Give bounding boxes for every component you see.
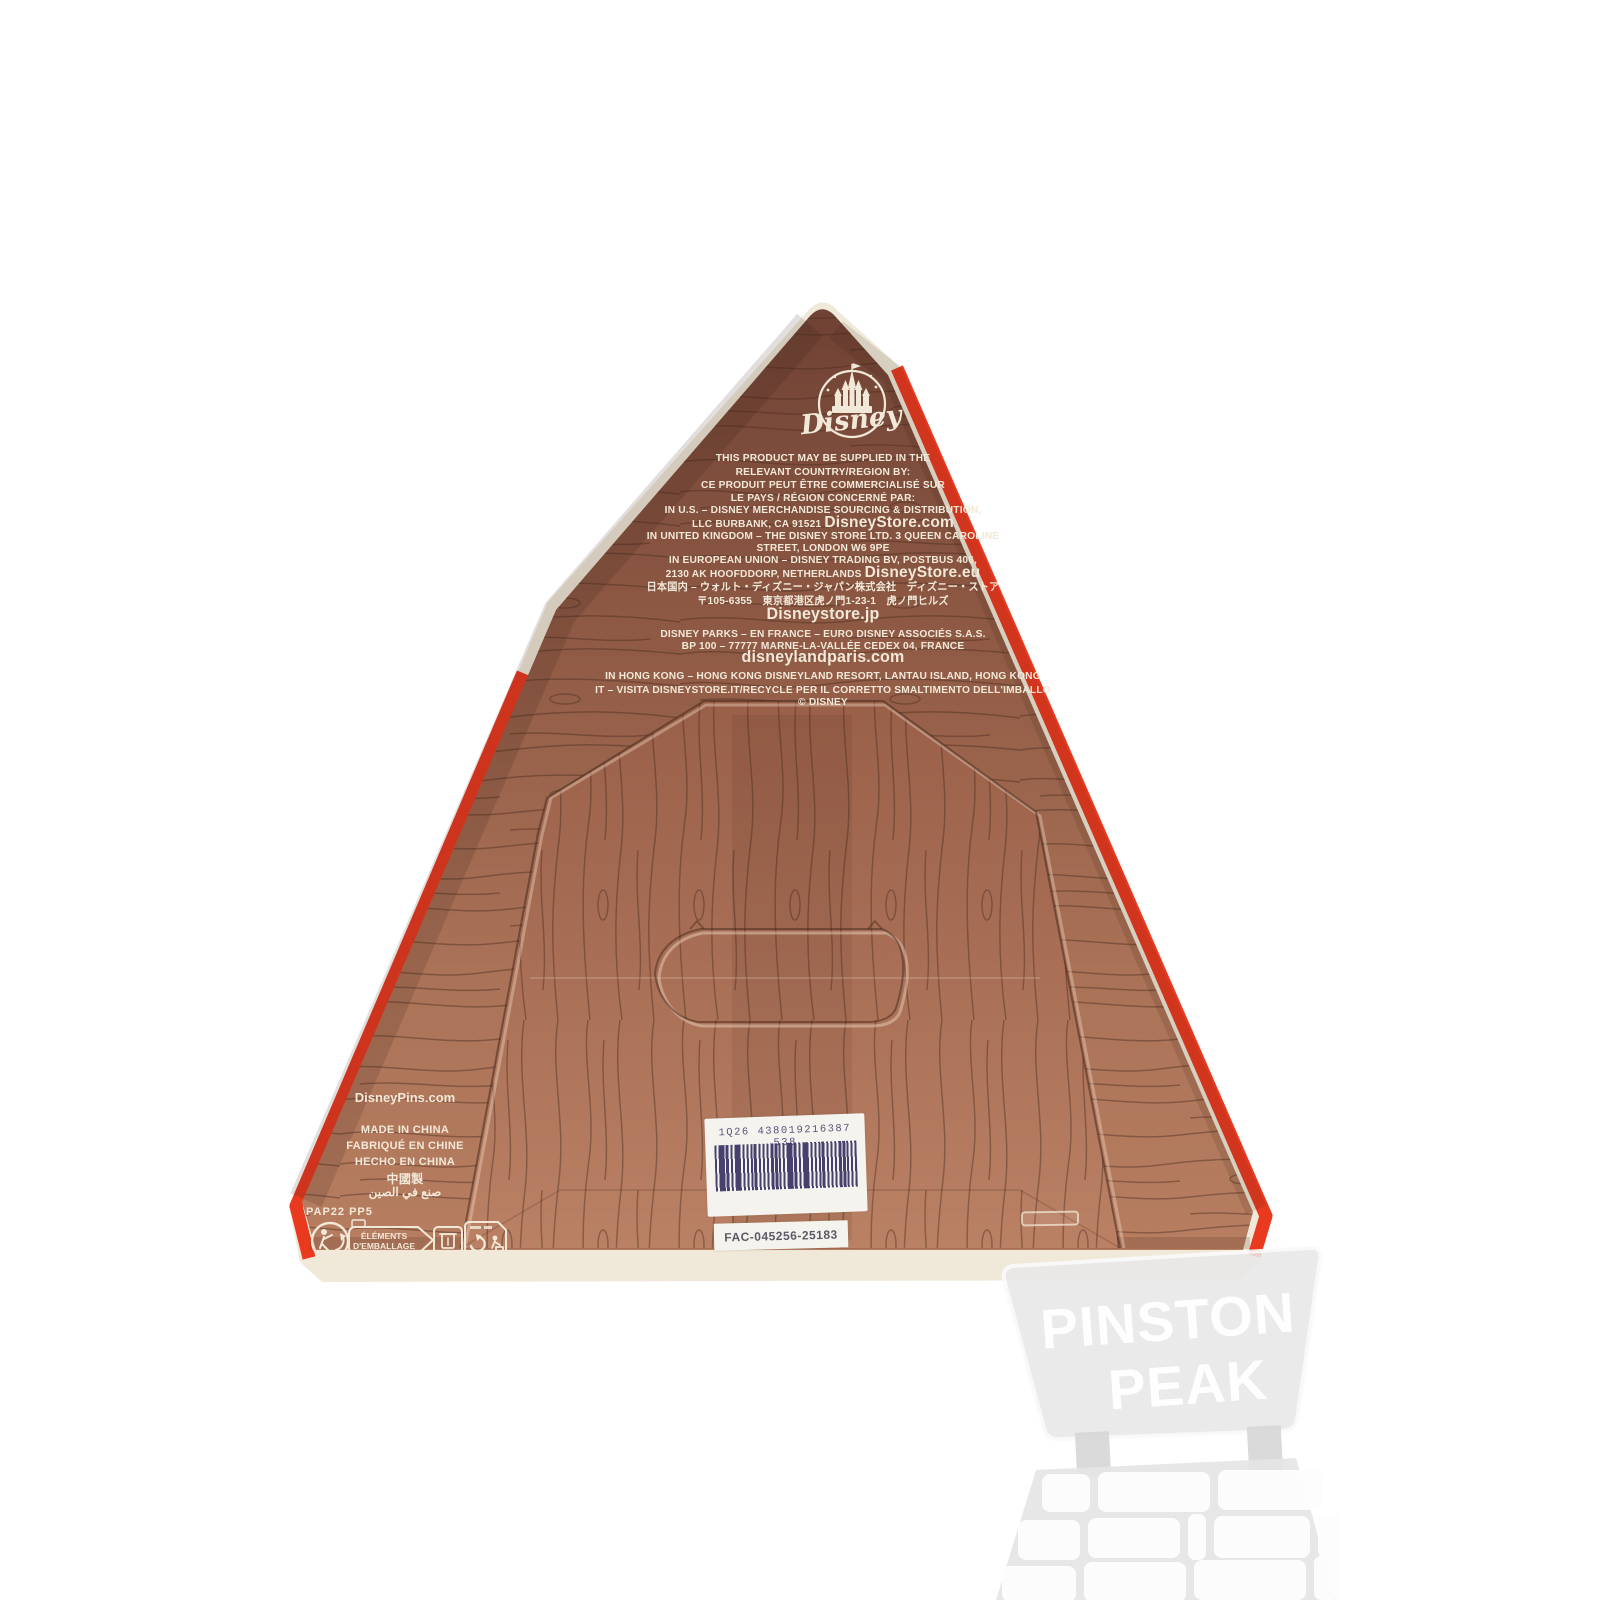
legal-line: THIS PRODUCT MAY BE SUPPLIED IN THE (716, 452, 930, 465)
website-jp: Disneystore.jp (766, 608, 879, 621)
copyright-line: © DISNEY (798, 696, 848, 709)
box-artwork: Disney (0, 0, 1600, 1600)
made-in-line-arabic: صنع في الصين (369, 1185, 442, 1199)
made-in-line: HECHO EN CHINA (355, 1156, 455, 1168)
disneypins-website: DisneyPins.com (355, 1090, 455, 1105)
barcode-bars (714, 1141, 858, 1192)
legal-line: LLC BURBANK, CA 91521 DisneyStore.com (692, 516, 954, 531)
watermark-bricks (1002, 1470, 1340, 1600)
fac-code-sticker: FAC-045256-25183 (714, 1220, 849, 1250)
product-photo-triangular-disney-pin-box-back: Disney (0, 0, 1600, 1600)
barcode-sticker: 1Q26 438019216387 538 (704, 1113, 867, 1217)
legal-line-japanese: 日本国内 – ウォルト・ディズニー・ジャパン株式会社 ディズニー・ストア (647, 581, 1000, 594)
legal-line: CE PRODUIT PEUT ÊTRE COMMERCIALISÉ SUR (701, 479, 945, 492)
legal-line: RELEVANT COUNTRY/REGION BY: (736, 466, 911, 479)
elements-emballage-label: ÉLÉMENTS D'EMBALLAGE (353, 1231, 415, 1251)
legal-line: IN HONG KONG – HONG KONG DISNEYLAND RESO… (605, 670, 1041, 683)
made-in-line: MADE IN CHINA (361, 1124, 449, 1136)
legal-line: 2130 AK HOOFDDORP, NETHERLANDS DisneySto… (666, 566, 981, 581)
tab-slot-cutout (1022, 1212, 1078, 1226)
material-code: PAP22 PP5 (306, 1206, 373, 1218)
website-eu: DisneyStore.eu (865, 564, 981, 581)
website-paris: disneylandparis.com (742, 651, 905, 664)
fac-code: FAC-045256-25183 (724, 1227, 838, 1244)
made-in-line: FABRIQUÉ EN CHINE (346, 1140, 464, 1152)
website-us: DisneyStore.com (824, 514, 954, 531)
